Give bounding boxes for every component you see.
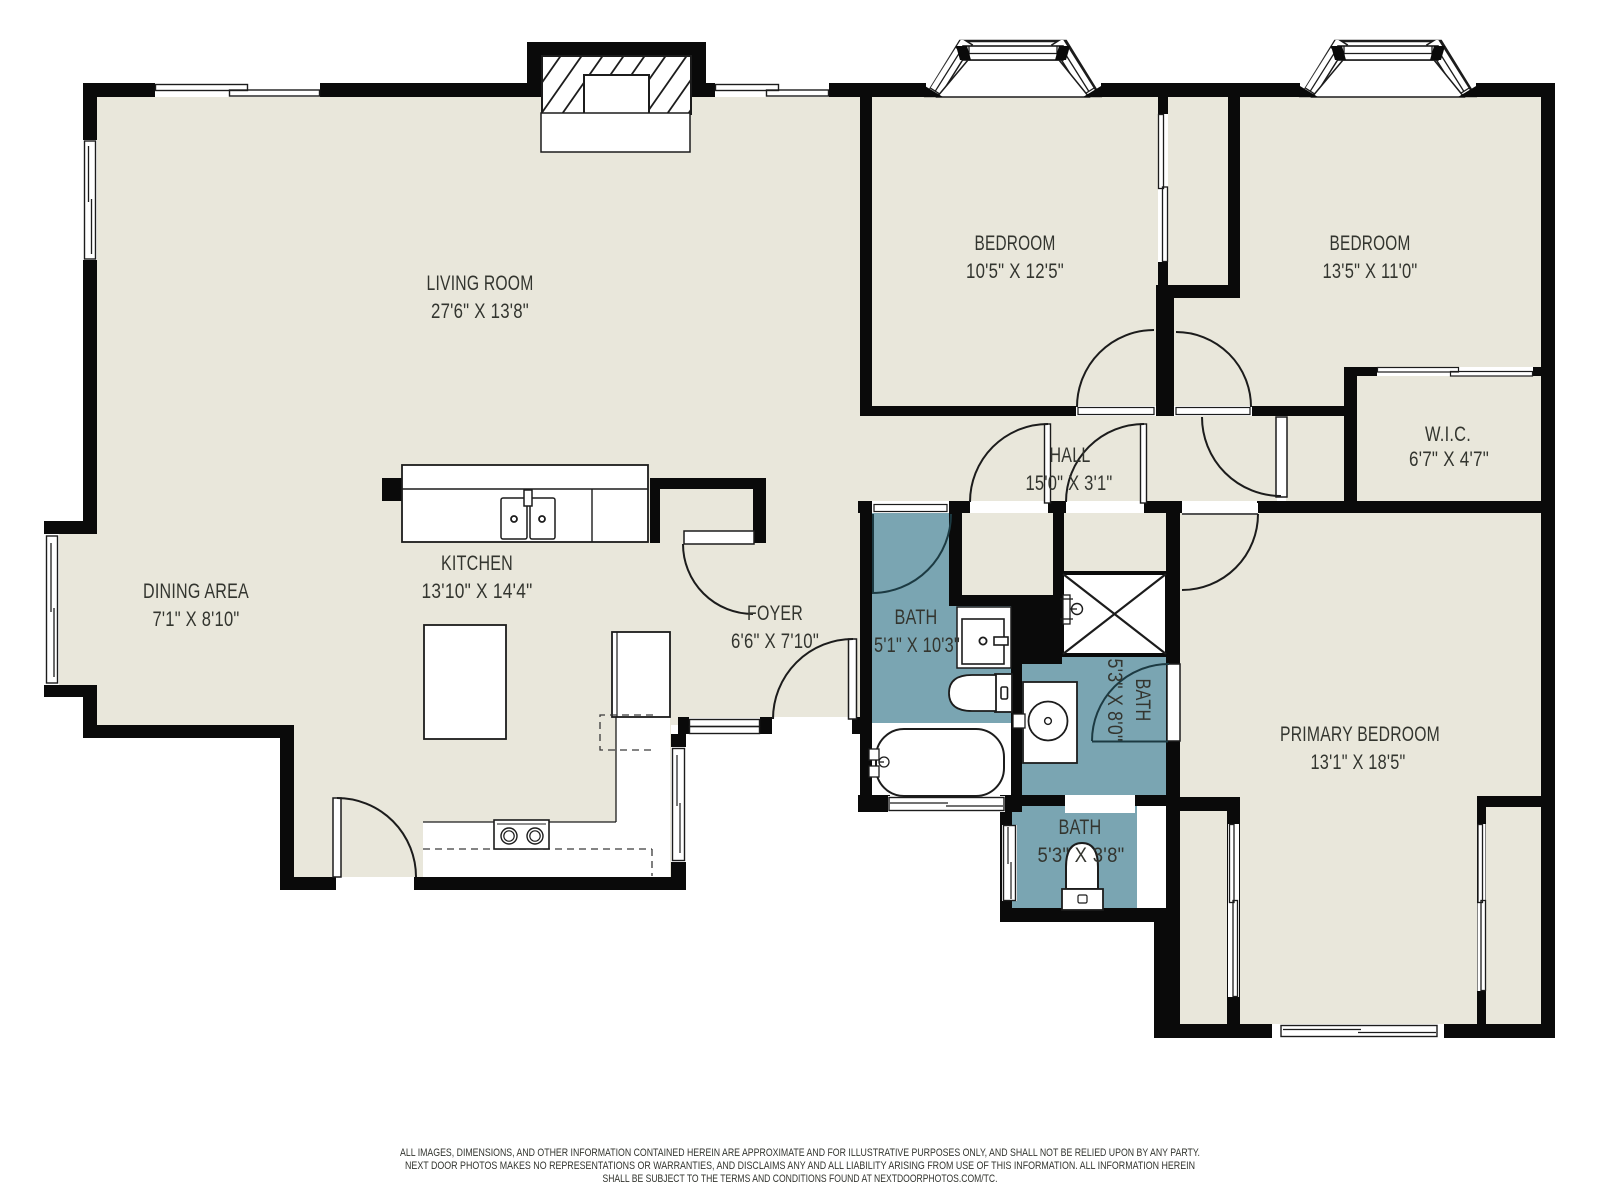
svg-text:27'6" X 13'8": 27'6" X 13'8" [431,299,529,323]
svg-text:BATH: BATH [895,605,938,629]
svg-text:15'0" X 3'1": 15'0" X 3'1" [1026,471,1113,495]
svg-text:NEXT DOOR PHOTOS MAKES NO REPR: NEXT DOOR PHOTOS MAKES NO REPRESENTATION… [405,1160,1195,1172]
svg-text:13'5" X 11'0": 13'5" X 11'0" [1323,259,1418,283]
svg-text:LIVING ROOM: LIVING ROOM [427,271,534,295]
svg-text:13'1" X 18'5": 13'1" X 18'5" [1311,750,1406,774]
svg-text:5'3" X 8'0": 5'3" X 8'0" [1103,659,1127,742]
svg-text:5'1" X 10'3": 5'1" X 10'3" [874,633,960,657]
svg-text:HALL: HALL [1050,443,1091,467]
svg-text:SHALL BE SUBJECT TO THE TERMS: SHALL BE SUBJECT TO THE TERMS AND CONDIT… [603,1173,998,1185]
svg-text:PRIMARY BEDROOM: PRIMARY BEDROOM [1280,722,1440,746]
svg-text:7'1" X 8'10": 7'1" X 8'10" [153,607,240,631]
svg-text:13'10" X 14'4": 13'10" X 14'4" [422,579,533,603]
svg-text:ALL IMAGES, DIMENSIONS, AND OT: ALL IMAGES, DIMENSIONS, AND OTHER INFORM… [400,1147,1200,1159]
svg-text:BATH: BATH [1131,679,1155,722]
svg-text:6'6" X 7'10": 6'6" X 7'10" [731,629,819,653]
svg-text:KITCHEN: KITCHEN [441,551,513,575]
svg-text:DINING AREA: DINING AREA [143,579,249,603]
svg-text:BEDROOM: BEDROOM [975,231,1056,255]
svg-text:BATH: BATH [1059,815,1102,839]
svg-text:6'7" X 4'7": 6'7" X 4'7" [1409,447,1489,471]
svg-text:BEDROOM: BEDROOM [1330,231,1411,255]
svg-text:10'5" X 12'5": 10'5" X 12'5" [966,259,1064,283]
svg-text:W.I.C.: W.I.C. [1425,422,1471,446]
svg-text:FOYER: FOYER [747,601,803,625]
svg-text:5'3" X 3'8": 5'3" X 3'8" [1038,843,1125,867]
